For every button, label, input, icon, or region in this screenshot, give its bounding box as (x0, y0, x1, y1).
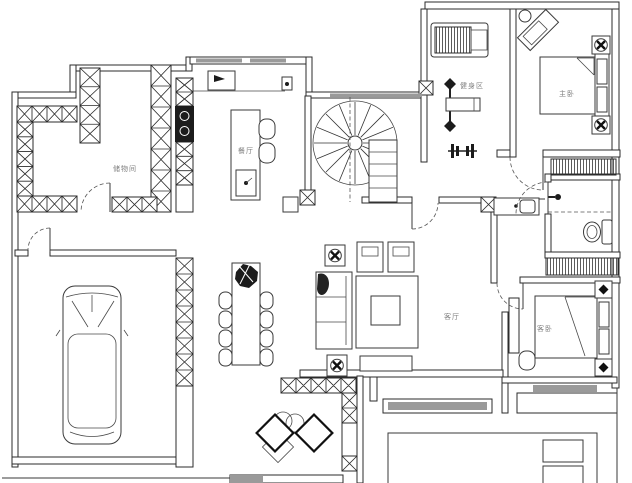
guest-bedroom (519, 281, 612, 376)
dining-chair (219, 292, 232, 309)
floor-plan-canvas: 储物间 餐厅 健身区 主卧 客厅 客卧 (0, 0, 632, 483)
master-bedroom (517, 9, 610, 134)
wall-guest-bottom (502, 377, 617, 383)
door-swing (28, 228, 50, 250)
room-label-guest-bedroom: 客卧 (537, 324, 553, 333)
stair-tread (362, 127, 393, 140)
terrace-step (543, 466, 583, 483)
room-label-gym: 健身区 (460, 81, 484, 90)
wardrobe-guest (546, 258, 618, 275)
pillow (597, 59, 607, 84)
room-label-master-bedroom: 主卧 (559, 89, 575, 98)
window (230, 475, 263, 483)
lamp-icon (595, 359, 612, 376)
stair-tread (326, 114, 349, 137)
diamond-chair (296, 415, 333, 452)
dining-chair (260, 311, 273, 328)
entry-lounge (257, 412, 333, 463)
car-mirror (124, 330, 128, 336)
wall-bedroom-south (543, 150, 620, 157)
wall-top-exterior (425, 2, 619, 9)
pillow (599, 329, 609, 354)
kitchen-sink (208, 71, 235, 90)
wardrobe-master (551, 159, 616, 175)
window (388, 402, 487, 410)
wall-right-exterior (612, 9, 619, 388)
wall-bath-bottom (545, 252, 620, 258)
lamp-icon (595, 281, 612, 298)
treadmill-belt (435, 27, 471, 53)
gym (431, 23, 488, 158)
stair-tread (361, 114, 384, 137)
wall-gym-left (421, 9, 427, 82)
diamond-chair (257, 415, 294, 452)
dining-chair (260, 349, 273, 366)
spiral-staircase (313, 97, 397, 202)
door-swing (81, 183, 110, 212)
wall-gym-bedroom (510, 9, 516, 157)
wall-garage-top (15, 250, 28, 256)
terrace (388, 433, 597, 483)
lamp-icon (329, 249, 342, 262)
bathroom (494, 194, 612, 244)
dining-chair (219, 330, 232, 347)
stair-tread (358, 105, 371, 136)
door-swing (510, 157, 543, 190)
barbell-plate (451, 144, 454, 158)
shower-head-icon (555, 194, 561, 200)
wall-bedroom-south (497, 150, 510, 157)
stool (283, 197, 298, 212)
lamp-icon (595, 39, 608, 52)
door-stop-icon (285, 82, 289, 86)
barbell-plate (466, 146, 469, 156)
living-room (316, 242, 418, 376)
room-label-dining: 餐厅 (238, 146, 254, 155)
coffee-table-tray (371, 296, 400, 325)
wall-entry-right (357, 376, 363, 483)
bedside-stool (519, 351, 535, 370)
toilet-tank (602, 220, 612, 244)
gym-bench (446, 98, 480, 111)
barbell-plate (471, 144, 474, 158)
master-bed (540, 57, 596, 114)
bar-chair (259, 143, 275, 163)
wall (370, 377, 377, 401)
stair-tread (326, 149, 349, 172)
pillow (597, 87, 607, 112)
bar-chair (259, 119, 275, 139)
wall-garage-right (176, 386, 193, 467)
kitchen-fridge (176, 185, 193, 212)
room-label-living-room: 客厅 (444, 312, 460, 321)
garage (56, 286, 128, 444)
pillow (599, 302, 609, 327)
floor-plan-page: 储物间 餐厅 健身区 主卧 客厅 客卧 (0, 0, 632, 483)
room-label-storage: 储物间 (113, 164, 137, 173)
door-swing (412, 203, 438, 229)
dining-chair (219, 311, 232, 328)
stair-landing (369, 140, 397, 202)
wall-bath-left (545, 174, 551, 182)
wall-garage-top (50, 250, 176, 256)
armchair (388, 242, 414, 272)
wall-gym-left-lower (421, 95, 427, 162)
wall-corridor-south (439, 197, 481, 203)
dining-chair (260, 292, 273, 309)
wall-garage-bottom (12, 457, 193, 464)
dining-table-group (219, 263, 273, 366)
wall-guest-left (502, 312, 508, 413)
toilet-icon (584, 222, 601, 242)
window (533, 385, 597, 392)
window (196, 59, 242, 63)
wall-bath-left (545, 214, 551, 255)
porch-step (517, 393, 617, 413)
vanity-sink (520, 200, 535, 213)
stair-tread (317, 127, 348, 140)
armchair (357, 242, 383, 272)
lamp-icon (595, 119, 608, 132)
wall-stair-left (305, 96, 311, 190)
dining-chair (219, 349, 232, 366)
lamp-icon (331, 359, 344, 372)
dining-chair (260, 330, 273, 347)
window (330, 94, 422, 98)
wall-entry (342, 423, 357, 456)
tv-bench (360, 356, 412, 371)
barbell-plate (456, 146, 459, 156)
wall (12, 92, 76, 98)
window (250, 59, 286, 63)
car-mirror (56, 330, 60, 336)
wall (306, 57, 312, 96)
terrace-step (543, 440, 583, 462)
stair-tread (317, 146, 348, 159)
desk-stool (519, 10, 531, 22)
